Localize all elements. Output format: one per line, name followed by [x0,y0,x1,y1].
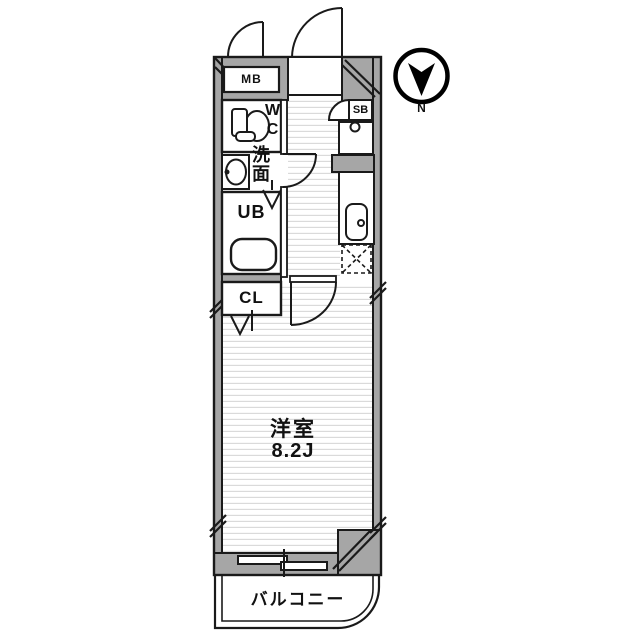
washroom-label: 洗面 [247,145,273,191]
main-room-label: 洋室 [243,413,343,443]
washbasin-icon [225,160,247,185]
meter-box-label: MB [224,67,279,92]
hall-partition-wall [281,100,287,277]
bathtub-icon [231,239,276,270]
shoe-box-label: SB [349,100,372,120]
main-room-size: 8.2J [243,440,343,463]
entrance-door-swing-icon [292,8,342,57]
floor-plan-drawing [0,0,639,640]
floor-plan: MB SB WC 洗面 UB CL 洋室 8.2J バルコニー N [0,0,639,640]
north-compass-icon [396,50,448,102]
kitchen-sink-icon [346,204,367,240]
balcony-label: バルコニー [228,585,368,610]
washing-machine-space-icon [342,245,371,273]
closet-label: CL [222,288,281,308]
unit-bath-label: UB [222,202,281,223]
entrance [288,57,342,95]
meter-box-door-swing-icon [228,22,263,57]
water-heater-unit [339,122,373,154]
toilet-label: WC [263,102,281,150]
north-label: N [410,101,433,115]
hallway-floor [288,95,340,277]
